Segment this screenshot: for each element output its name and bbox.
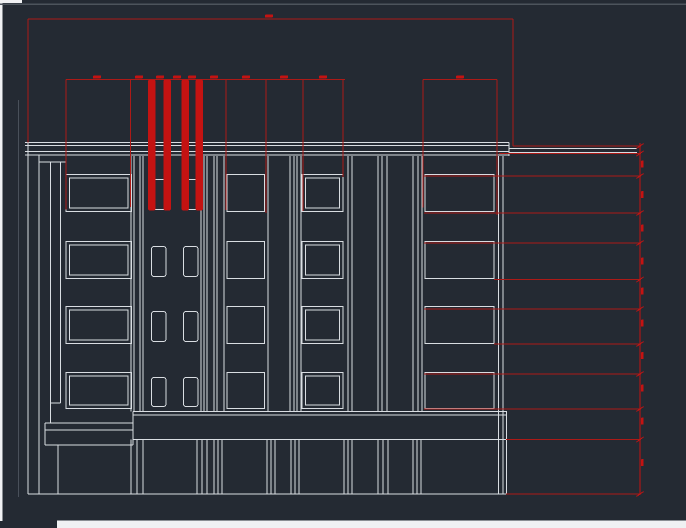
cad-drawing-canvas: [0, 0, 686, 528]
cad-viewport: [0, 0, 686, 528]
